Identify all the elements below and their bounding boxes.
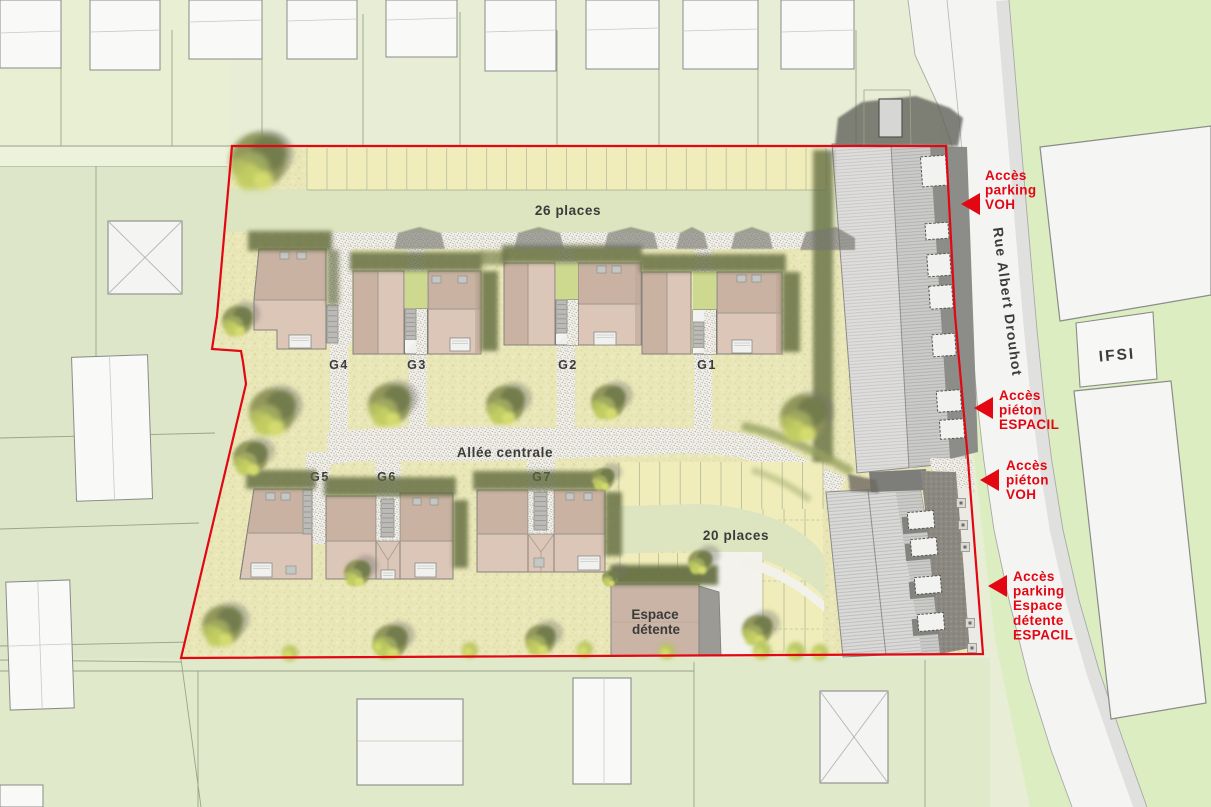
- svg-text:20 places: 20 places: [703, 528, 769, 543]
- svg-text:G3: G3: [407, 358, 427, 372]
- svg-text:G2: G2: [558, 358, 578, 372]
- svg-text:26 places: 26 places: [535, 203, 601, 218]
- svg-text:détente: détente: [632, 622, 681, 637]
- svg-text:Allée centrale: Allée centrale: [457, 445, 553, 460]
- svg-text:Espace: Espace: [631, 607, 679, 622]
- svg-text:G1: G1: [697, 358, 717, 372]
- svg-text:IFSI: IFSI: [1098, 345, 1136, 365]
